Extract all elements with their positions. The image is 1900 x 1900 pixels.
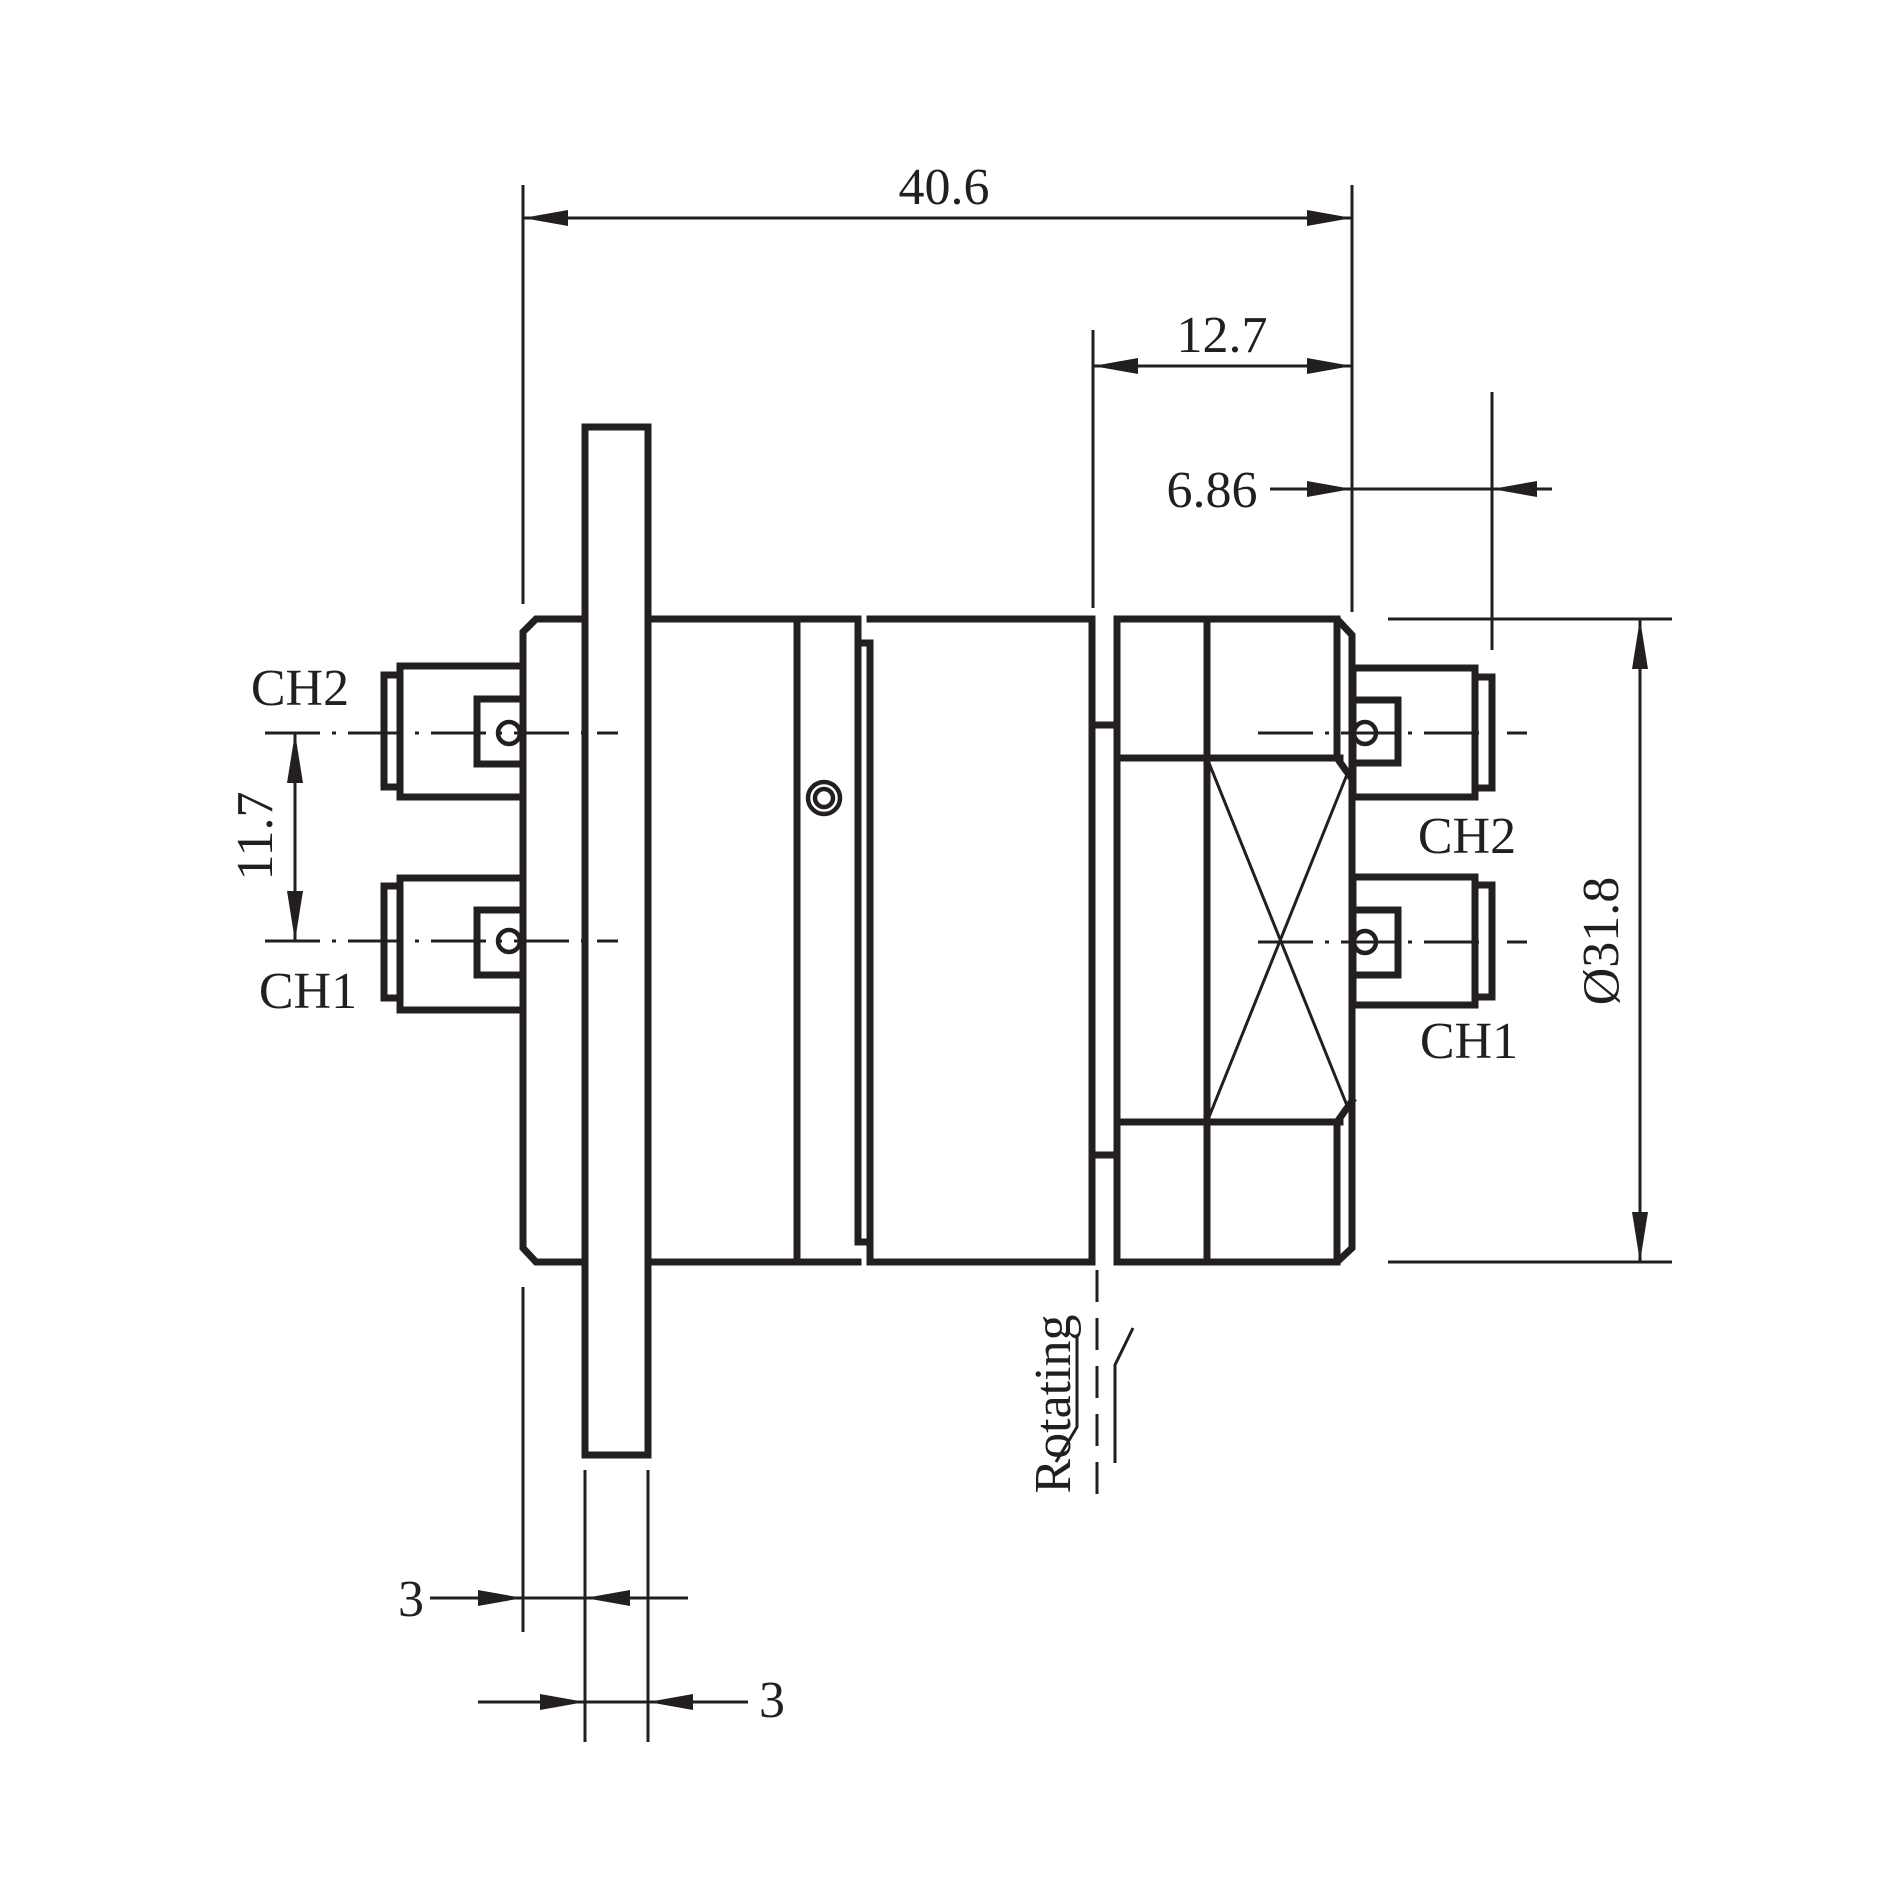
connector-ch1-left — [384, 878, 523, 1010]
rotating-label: Rotating — [1025, 1314, 1082, 1493]
rotor-left-section — [523, 619, 858, 1262]
dim-stator-length-value: 12.7 — [1177, 307, 1268, 364]
dim-connector-offset: 6.86 — [1167, 392, 1553, 650]
technical-drawing-page: 40.6 12.7 6.86 11.7 Ø31.8 — [0, 0, 1900, 1900]
dim-hub-lip-thickness-value: 3 — [398, 1571, 424, 1628]
rotor-middle-section — [870, 619, 1117, 1262]
rotation-arrow-right-icon — [1115, 1328, 1133, 1463]
rotating-annotation: Rotating — [1025, 1270, 1133, 1505]
label-ch1-right: CH1 — [1420, 1013, 1518, 1070]
dim-connector-offset-value: 6.86 — [1167, 462, 1258, 519]
dim-plate-thickness-value: 3 — [759, 1672, 785, 1729]
label-ch2-left: CH2 — [251, 660, 349, 717]
rotor-joint-groove — [858, 619, 870, 1262]
label-ch1-left: CH1 — [259, 963, 357, 1020]
dim-channel-spacing-value: 11.7 — [227, 791, 284, 880]
stator-section — [1117, 619, 1352, 1262]
rotary-joint-dimension-drawing: 40.6 12.7 6.86 11.7 Ø31.8 — [0, 0, 1900, 1900]
dim-overall-length-value: 40.6 — [899, 159, 990, 216]
label-ch2-right: CH2 — [1418, 808, 1516, 865]
dim-channel-spacing: 11.7 — [227, 733, 303, 941]
dim-stator-length: 12.7 — [1093, 307, 1352, 608]
dim-body-diameter-value: Ø31.8 — [1573, 877, 1630, 1006]
screw-hole-icon — [808, 782, 840, 814]
winding-x-mark — [1207, 758, 1348, 1122]
